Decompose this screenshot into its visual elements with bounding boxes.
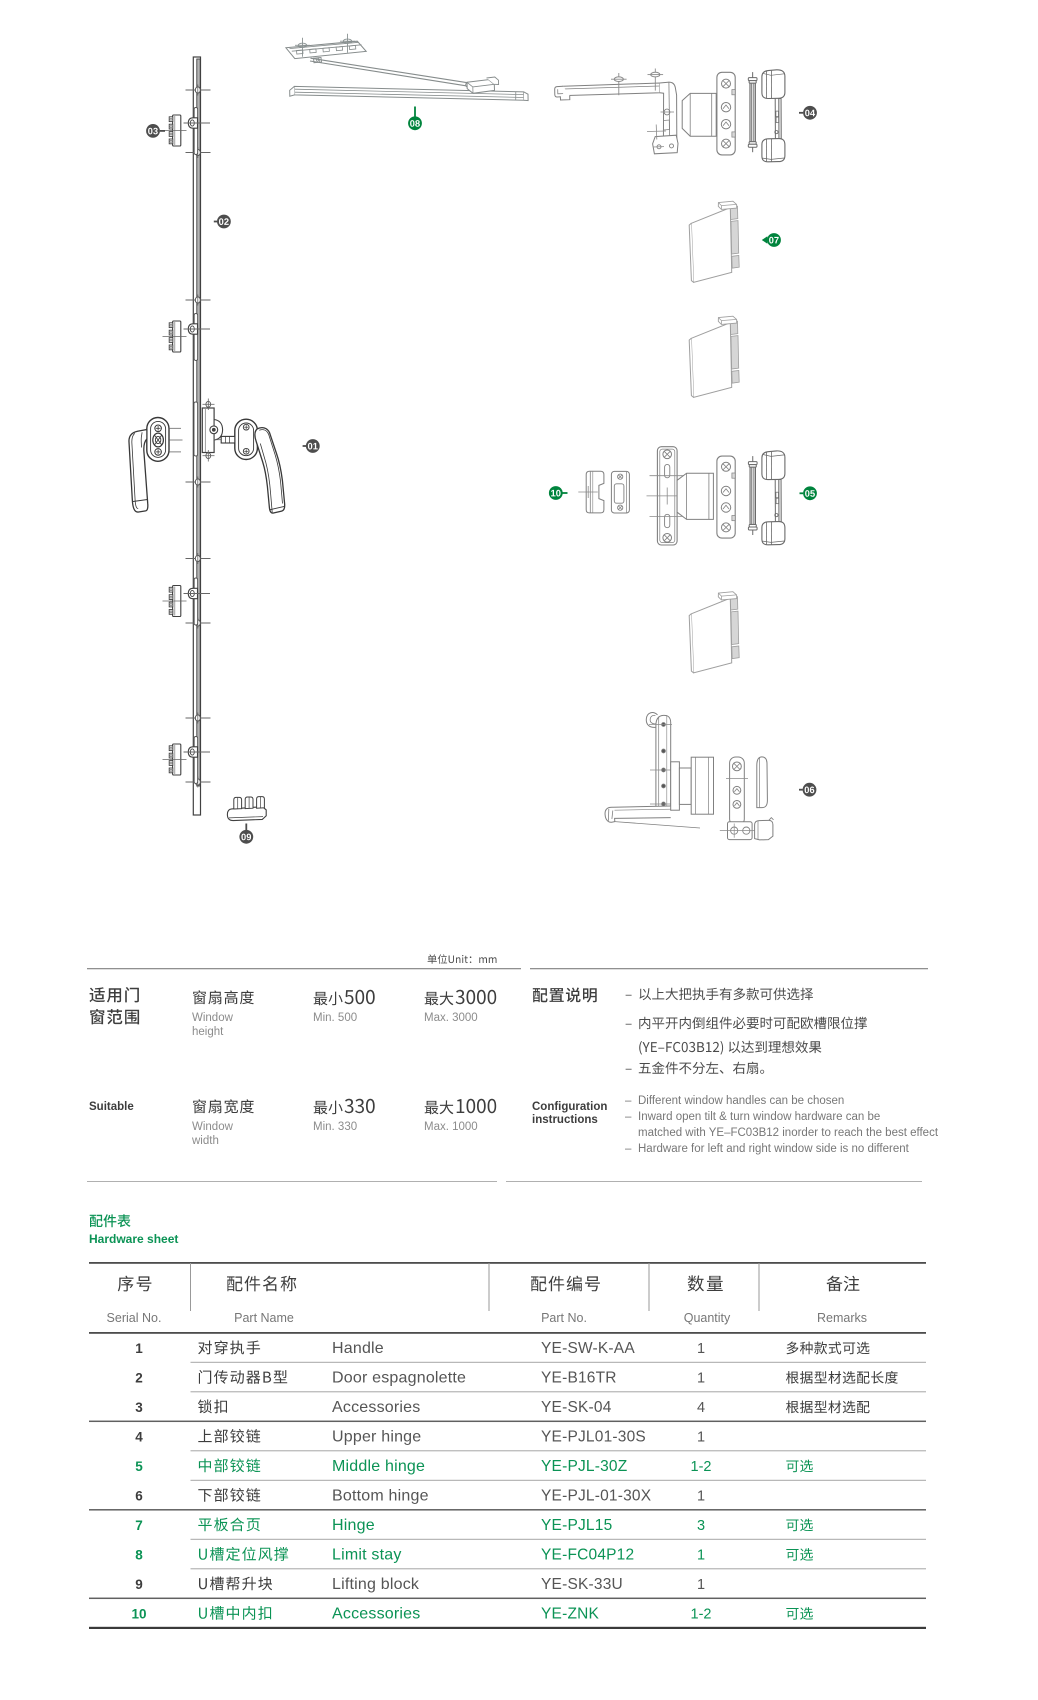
- svg-text:4: 4: [697, 1400, 705, 1416]
- svg-text:Part No.: Part No.: [541, 1311, 587, 1325]
- svg-text:Window: Window: [192, 1121, 234, 1133]
- svg-text:1: 1: [697, 1371, 705, 1387]
- svg-text:Different window handles can b: Different window handles can be chosen: [638, 1095, 844, 1107]
- svg-text:1: 1: [697, 1577, 705, 1593]
- svg-text:Upper hinge: Upper hinge: [332, 1429, 421, 1446]
- svg-text:3: 3: [135, 1400, 143, 1415]
- svg-text:YE-B16TR: YE-B16TR: [541, 1370, 617, 1387]
- svg-text:Accessories: Accessories: [332, 1606, 420, 1623]
- svg-text:Inward open tilt & turn window: Inward open tilt & turn window hardware …: [638, 1111, 880, 1123]
- svg-text:YE-SK-33U: YE-SK-33U: [541, 1576, 623, 1593]
- svg-text:Quantity: Quantity: [684, 1311, 731, 1325]
- svg-text:Door espagnolette: Door espagnolette: [332, 1370, 466, 1387]
- svg-text:width: width: [191, 1135, 219, 1147]
- svg-text:Suitable: Suitable: [89, 1101, 134, 1113]
- svg-text:6: 6: [135, 1489, 143, 1504]
- svg-text:Bottom hinge: Bottom hinge: [332, 1488, 429, 1505]
- svg-text:1: 1: [697, 1341, 705, 1357]
- svg-text:1: 1: [697, 1548, 705, 1564]
- svg-text:1-2: 1-2: [691, 1459, 712, 1475]
- svg-text:Accessories: Accessories: [332, 1399, 420, 1416]
- svg-text:matched with YE–FC03B12 inorde: matched with YE–FC03B12 inorder to reach…: [638, 1127, 939, 1139]
- svg-text:Min. 330: Min. 330: [313, 1121, 357, 1133]
- svg-text:1: 1: [697, 1489, 705, 1505]
- svg-text:1: 1: [697, 1430, 705, 1446]
- svg-text:Lifting block: Lifting block: [332, 1576, 420, 1593]
- svg-text:8: 8: [135, 1548, 143, 1563]
- svg-text:Hardware for left and right wi: Hardware for left and right window side …: [638, 1143, 910, 1155]
- svg-text:Max. 1000: Max. 1000: [424, 1121, 478, 1133]
- svg-text:3: 3: [697, 1518, 705, 1534]
- svg-text:YE-PJL01-30S: YE-PJL01-30S: [541, 1429, 646, 1446]
- svg-text:Hinge: Hinge: [332, 1517, 375, 1534]
- svg-text:Handle: Handle: [332, 1340, 384, 1357]
- svg-text:9: 9: [135, 1577, 143, 1592]
- svg-text:Window: Window: [192, 1012, 234, 1024]
- svg-text:instructions: instructions: [532, 1114, 598, 1126]
- svg-text:YE-ZNK: YE-ZNK: [541, 1606, 600, 1623]
- svg-text:Configuration: Configuration: [532, 1101, 607, 1113]
- svg-text:5: 5: [135, 1459, 143, 1474]
- svg-text:YE-SK-04: YE-SK-04: [541, 1399, 612, 1416]
- svg-text:YE-FC04P12: YE-FC04P12: [541, 1547, 634, 1564]
- svg-text:YE-SW-K-AA: YE-SW-K-AA: [541, 1340, 635, 1357]
- svg-text:Part Name: Part Name: [234, 1311, 294, 1325]
- svg-text:Max. 3000: Max. 3000: [424, 1012, 478, 1024]
- svg-text:7: 7: [135, 1518, 143, 1533]
- svg-text:2: 2: [135, 1371, 143, 1386]
- svg-text:Middle hinge: Middle hinge: [332, 1458, 425, 1475]
- svg-text:YE-PJL15: YE-PJL15: [541, 1517, 612, 1534]
- svg-text:1: 1: [135, 1341, 143, 1356]
- svg-text:YE-PJL-01-30X: YE-PJL-01-30X: [541, 1488, 652, 1505]
- svg-text:–: –: [625, 1095, 632, 1107]
- svg-text:YE-PJL-30Z: YE-PJL-30Z: [541, 1458, 627, 1475]
- svg-text:–: –: [625, 1143, 632, 1155]
- svg-text:4: 4: [135, 1430, 143, 1445]
- svg-text:–: –: [625, 1111, 632, 1123]
- svg-text:Limit stay: Limit stay: [332, 1547, 402, 1564]
- svg-text:10: 10: [131, 1607, 146, 1622]
- svg-text:Hardware sheet: Hardware sheet: [89, 1232, 178, 1246]
- svg-text:height: height: [192, 1026, 224, 1038]
- svg-text:Remarks: Remarks: [817, 1311, 867, 1325]
- svg-text:Min. 500: Min. 500: [313, 1012, 357, 1024]
- svg-text:Serial No.: Serial No.: [107, 1311, 162, 1325]
- svg-text:1-2: 1-2: [691, 1607, 712, 1623]
